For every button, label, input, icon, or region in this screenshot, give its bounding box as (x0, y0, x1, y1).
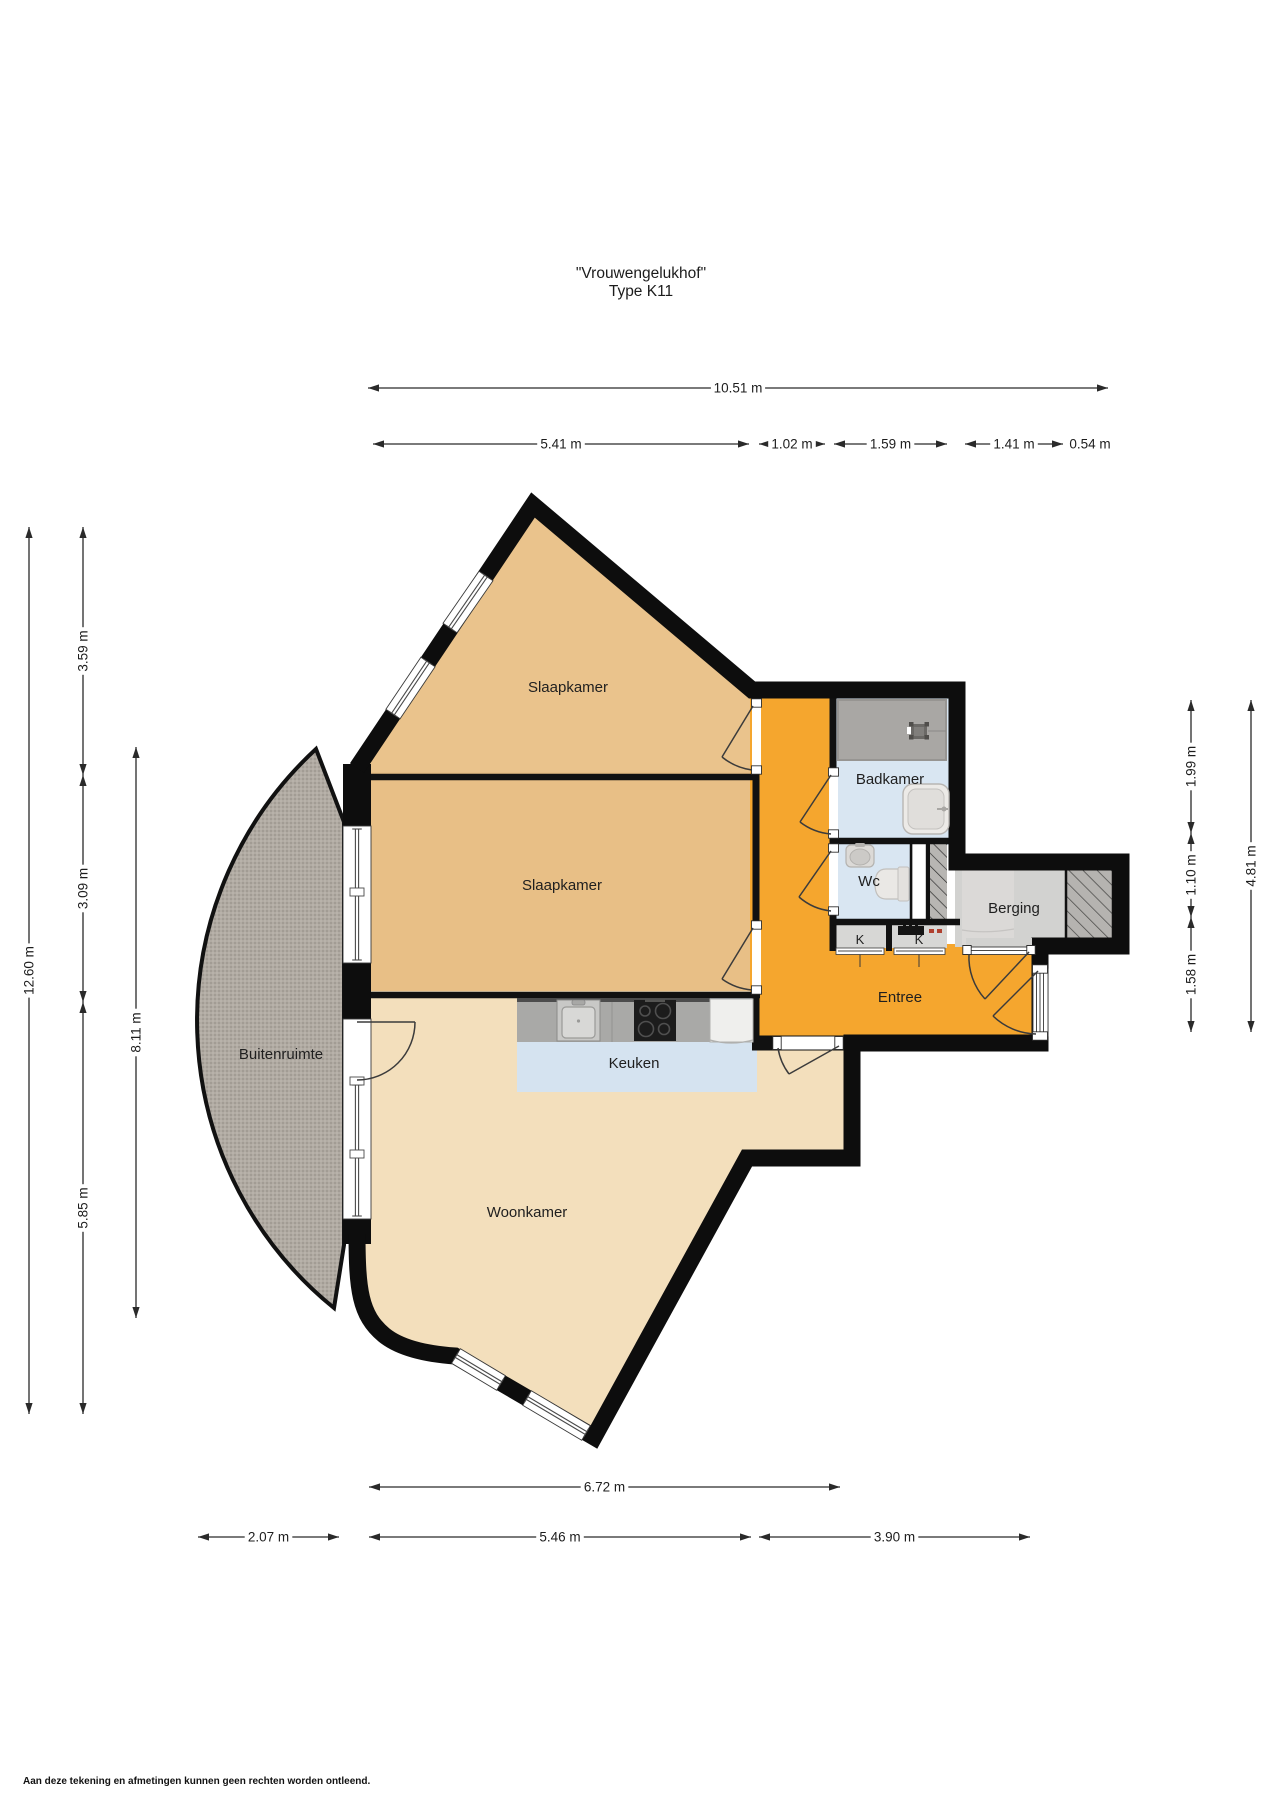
svg-text:5.85 m: 5.85 m (76, 1187, 91, 1228)
svg-text:3.09 m: 3.09 m (76, 868, 91, 909)
svg-text:Keuken: Keuken (609, 1055, 660, 1072)
svg-text:12.60 m: 12.60 m (22, 946, 37, 995)
svg-text:Type K11: Type K11 (609, 283, 673, 300)
svg-text:10.51 m: 10.51 m (714, 381, 763, 396)
svg-text:3.59 m: 3.59 m (76, 630, 91, 671)
svg-text:3.90 m: 3.90 m (874, 1530, 915, 1545)
svg-text:5.46 m: 5.46 m (539, 1530, 580, 1545)
svg-text:1.02 m: 1.02 m (771, 437, 812, 452)
svg-text:1.59 m: 1.59 m (870, 437, 911, 452)
svg-text:1.58 m: 1.58 m (1184, 954, 1199, 995)
svg-text:Wc: Wc (858, 873, 880, 890)
svg-text:1.99 m: 1.99 m (1184, 746, 1199, 787)
svg-text:2.07 m: 2.07 m (248, 1530, 289, 1545)
svg-text:Badkamer: Badkamer (856, 771, 924, 788)
svg-text:8.11 m: 8.11 m (129, 1012, 144, 1052)
svg-text:4.81 m: 4.81 m (1244, 845, 1259, 886)
svg-text:Woonkamer: Woonkamer (487, 1204, 568, 1221)
svg-text:6.72 m: 6.72 m (584, 1480, 625, 1495)
svg-text:Buitenruimte: Buitenruimte (239, 1046, 323, 1063)
svg-text:5.41 m: 5.41 m (540, 437, 581, 452)
svg-text:Berging: Berging (988, 900, 1040, 917)
svg-text:K: K (915, 932, 924, 947)
svg-text:0.54 m: 0.54 m (1069, 437, 1110, 452)
svg-text:"Vrouwengelukhof": "Vrouwengelukhof" (576, 265, 706, 282)
svg-text:Aan deze tekening en afmetinge: Aan deze tekening en afmetingen kunnen g… (23, 1776, 370, 1787)
svg-text:1.10 m: 1.10 m (1184, 854, 1199, 895)
svg-text:Slaapkamer: Slaapkamer (528, 679, 608, 696)
svg-text:Slaapkamer: Slaapkamer (522, 877, 602, 894)
svg-text:1.41 m: 1.41 m (993, 437, 1034, 452)
svg-text:Entree: Entree (878, 989, 922, 1006)
svg-text:K: K (856, 932, 865, 947)
